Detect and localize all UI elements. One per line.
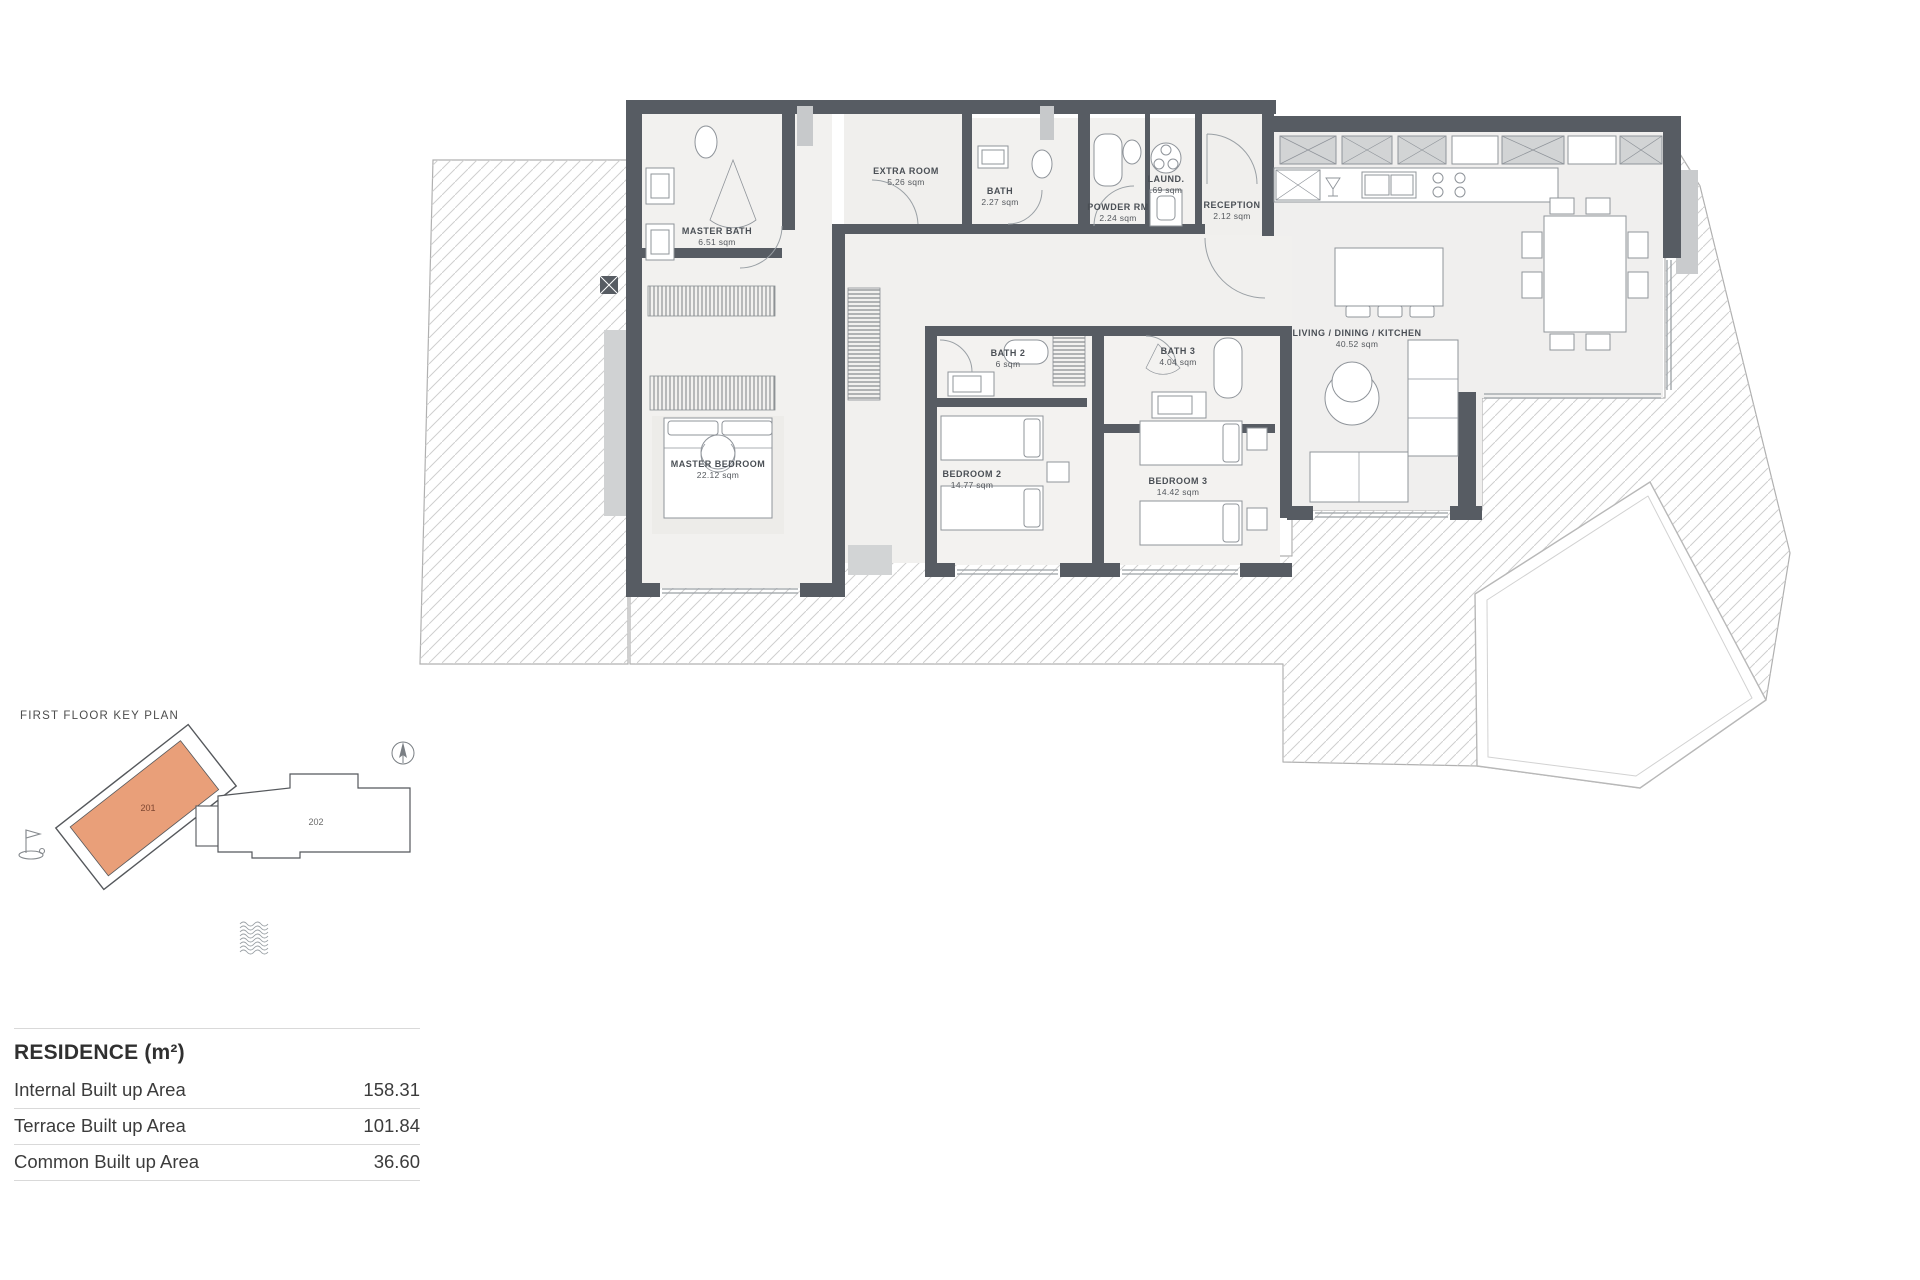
shaft-box	[600, 276, 618, 294]
key-plan	[56, 725, 410, 890]
room-label-extra-room: EXTRA ROOM5.26 sqm	[873, 166, 939, 188]
residence-table-title: RESIDENCE (m²)	[14, 1029, 420, 1073]
exterior-slab-west	[604, 330, 626, 516]
room-label-bedroom-3: BEDROOM 314.42 sqm	[1148, 476, 1207, 498]
floorplan-sheet: MASTER BATH6.51 sqm EXTRA ROOM5.26 sqm B…	[0, 0, 1920, 1280]
corridor-mat	[848, 545, 892, 575]
north-arrow-icon	[392, 742, 414, 764]
room-label-bath-2: BATH 26 sqm	[991, 348, 1026, 370]
key-plan-title: FIRST FLOOR KEY PLAN	[20, 710, 179, 722]
room-label-powder-rm: POWDER RM2.24 sqm	[1087, 202, 1149, 224]
room-label-reception: RECEPTION2.12 sqm	[1203, 200, 1260, 222]
room-label-living-dining-kitchen: LIVING / DINING / KITCHEN40.52 sqm	[1292, 328, 1421, 350]
room-label-laundry: LAUND..69 sqm	[1148, 174, 1185, 196]
area-row-value: 158.31	[363, 1079, 420, 1101]
golf-flag-icon	[19, 830, 45, 859]
area-row-value: 36.60	[374, 1151, 420, 1173]
area-row-value: 101.84	[363, 1115, 420, 1137]
room-label-bath-3: BATH 34.04 sqm	[1159, 346, 1196, 368]
key-plan-unit-202-outline	[218, 774, 410, 858]
residence-area-table: RESIDENCE (m²) Internal Built up Area 15…	[14, 1028, 420, 1181]
table-row: Common Built up Area 36.60	[14, 1145, 420, 1181]
terrace-left	[420, 160, 628, 664]
table-row: Internal Built up Area 158.31	[14, 1073, 420, 1109]
room-label-bath: BATH2.27 sqm	[981, 186, 1018, 208]
material-swatch	[240, 922, 268, 954]
key-plan-unit-202-label: 202	[308, 817, 323, 827]
key-plan-unit-201-label: 201	[140, 803, 155, 813]
area-row-label: Internal Built up Area	[14, 1079, 186, 1101]
area-row-label: Common Built up Area	[14, 1151, 199, 1173]
room-label-master-bedroom: MASTER BEDROOM22.12 sqm	[671, 459, 766, 481]
table-row: Terrace Built up Area 101.84	[14, 1109, 420, 1145]
room-label-bedroom-2: BEDROOM 214.77 sqm	[942, 469, 1001, 491]
area-row-label: Terrace Built up Area	[14, 1115, 186, 1137]
room-label-master-bath: MASTER BATH6.51 sqm	[682, 226, 752, 248]
